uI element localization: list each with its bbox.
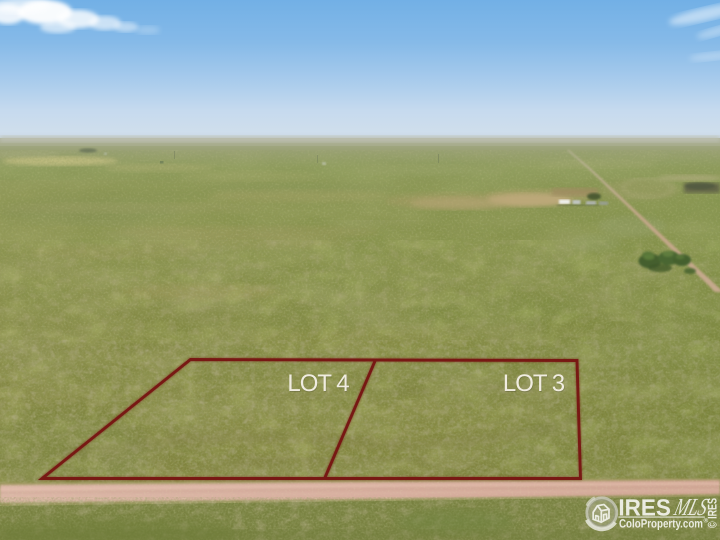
svg-text:© IRES: © IRES — [706, 498, 720, 528]
svg-text:ColoProperty.com: ColoProperty.com — [619, 516, 703, 530]
svg-text:LOT 3: LOT 3 — [503, 370, 565, 397]
svg-text:LOT 4: LOT 4 — [287, 370, 349, 397]
